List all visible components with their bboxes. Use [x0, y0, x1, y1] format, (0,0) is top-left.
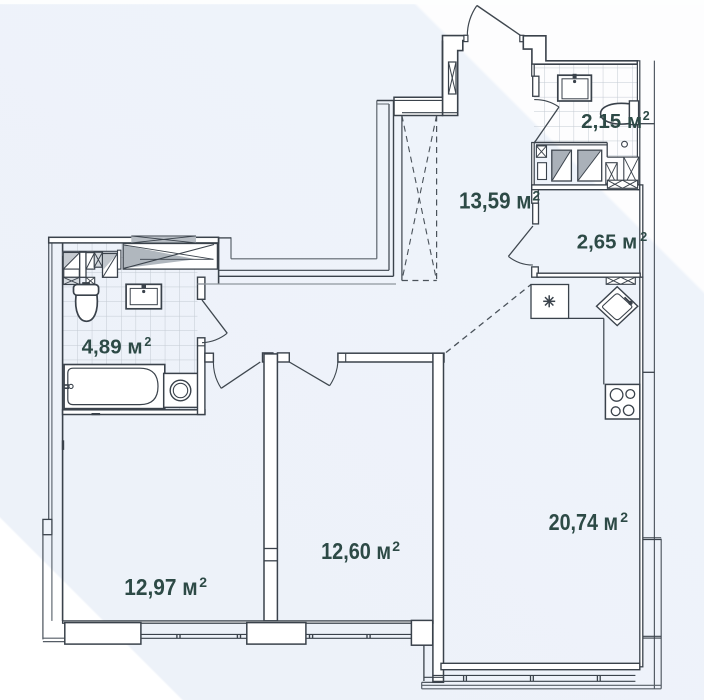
svg-text:4,89 м: 4,89 м	[82, 337, 143, 359]
svg-text:12,97 м: 12,97 м	[124, 574, 197, 600]
svg-text:2: 2	[392, 538, 400, 554]
svg-text:20,74 м: 20,74 м	[549, 509, 619, 535]
svg-text:2: 2	[620, 509, 628, 525]
svg-text:2: 2	[199, 574, 207, 590]
svg-text:13,59 м: 13,59 м	[459, 187, 532, 213]
svg-text:2,65 м: 2,65 м	[577, 232, 637, 254]
svg-text:2: 2	[144, 335, 151, 349]
svg-text:12,60 м: 12,60 м	[321, 538, 391, 564]
svg-text:2: 2	[532, 188, 540, 204]
svg-text:2,15 м: 2,15 м	[581, 111, 642, 133]
svg-text:2: 2	[643, 109, 650, 123]
svg-text:2: 2	[640, 230, 647, 244]
